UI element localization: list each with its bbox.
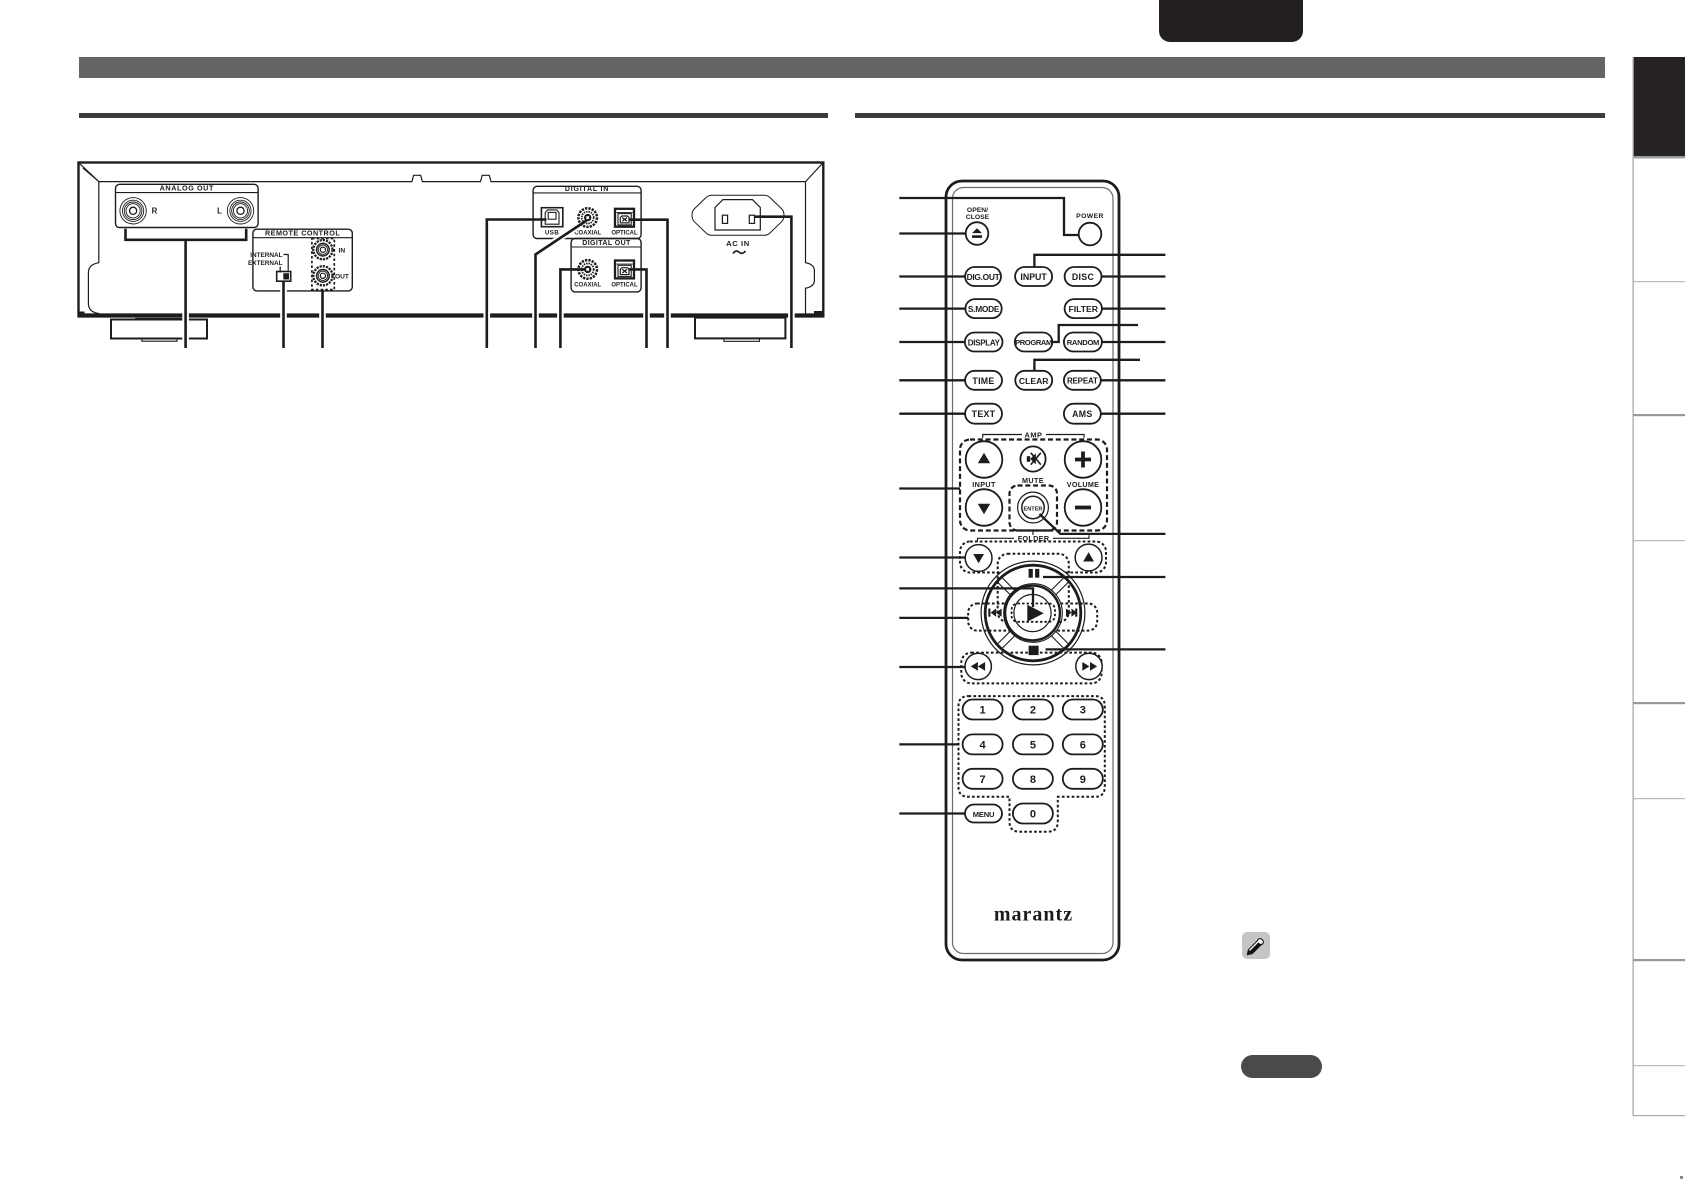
svg-text:S.MODE: S.MODE	[968, 304, 1000, 314]
svg-text:DIGITAL IN: DIGITAL IN	[565, 186, 609, 193]
svg-text:IN: IN	[339, 247, 346, 254]
svg-text:R: R	[152, 207, 158, 216]
svg-text:COAXIAL: COAXIAL	[574, 283, 601, 289]
svg-text:USB: USB	[545, 230, 559, 237]
svg-text:CLEAR: CLEAR	[1019, 376, 1049, 386]
svg-text:DISPLAY: DISPLAY	[968, 338, 1001, 347]
svg-text:DISC: DISC	[1072, 272, 1095, 282]
svg-text:5: 5	[1030, 740, 1036, 752]
svg-text:3: 3	[1080, 705, 1086, 717]
svg-text:FILTER: FILTER	[1068, 304, 1098, 314]
svg-text:AMS: AMS	[1072, 409, 1092, 419]
svg-text:marantz: marantz	[994, 904, 1073, 926]
svg-text:OPEN/: OPEN/	[967, 207, 988, 214]
svg-text:2: 2	[1030, 705, 1036, 717]
svg-text:OUT: OUT	[335, 273, 349, 280]
svg-text:AMP: AMP	[1025, 431, 1043, 440]
svg-text:COAXIAL: COAXIAL	[574, 231, 601, 237]
svg-text:TIME: TIME	[972, 376, 994, 386]
svg-text:RANDOM: RANDOM	[1067, 338, 1099, 347]
svg-text:EXTERNAL: EXTERNAL	[248, 260, 283, 267]
svg-text:0: 0	[1030, 809, 1036, 821]
svg-text:6: 6	[1080, 740, 1086, 752]
svg-text:4: 4	[980, 740, 987, 752]
svg-text:8: 8	[1030, 774, 1036, 786]
svg-text:ANALOG OUT: ANALOG OUT	[160, 184, 214, 193]
svg-text:MENU: MENU	[973, 810, 995, 819]
svg-text:VOLUME: VOLUME	[1067, 480, 1100, 489]
svg-text:9: 9	[1080, 774, 1086, 786]
svg-text:DIG.OUT: DIG.OUT	[967, 272, 1001, 282]
svg-text:INTERNAL: INTERNAL	[250, 252, 282, 259]
svg-text:INPUT: INPUT	[972, 480, 996, 489]
svg-text:MUTE: MUTE	[1022, 476, 1044, 485]
svg-text:CLOSE: CLOSE	[966, 214, 990, 221]
svg-text:7: 7	[980, 774, 986, 786]
svg-text:TEXT: TEXT	[972, 409, 996, 419]
svg-text:PROGRAM: PROGRAM	[1015, 338, 1052, 347]
svg-text:OPTICAL: OPTICAL	[611, 283, 638, 289]
svg-text:DIGITAL OUT: DIGITAL OUT	[582, 240, 631, 247]
svg-text:L: L	[217, 207, 222, 216]
svg-text:1: 1	[980, 705, 986, 717]
svg-text:REMOTE CONTROL: REMOTE CONTROL	[265, 229, 340, 238]
svg-text:REPEAT: REPEAT	[1067, 377, 1098, 386]
svg-text:ENTER: ENTER	[1024, 506, 1043, 512]
svg-text:INPUT: INPUT	[1020, 272, 1047, 282]
svg-text:POWER: POWER	[1076, 213, 1104, 220]
svg-text:OPTICAL: OPTICAL	[611, 231, 638, 237]
svg-text:AC IN: AC IN	[726, 239, 750, 248]
